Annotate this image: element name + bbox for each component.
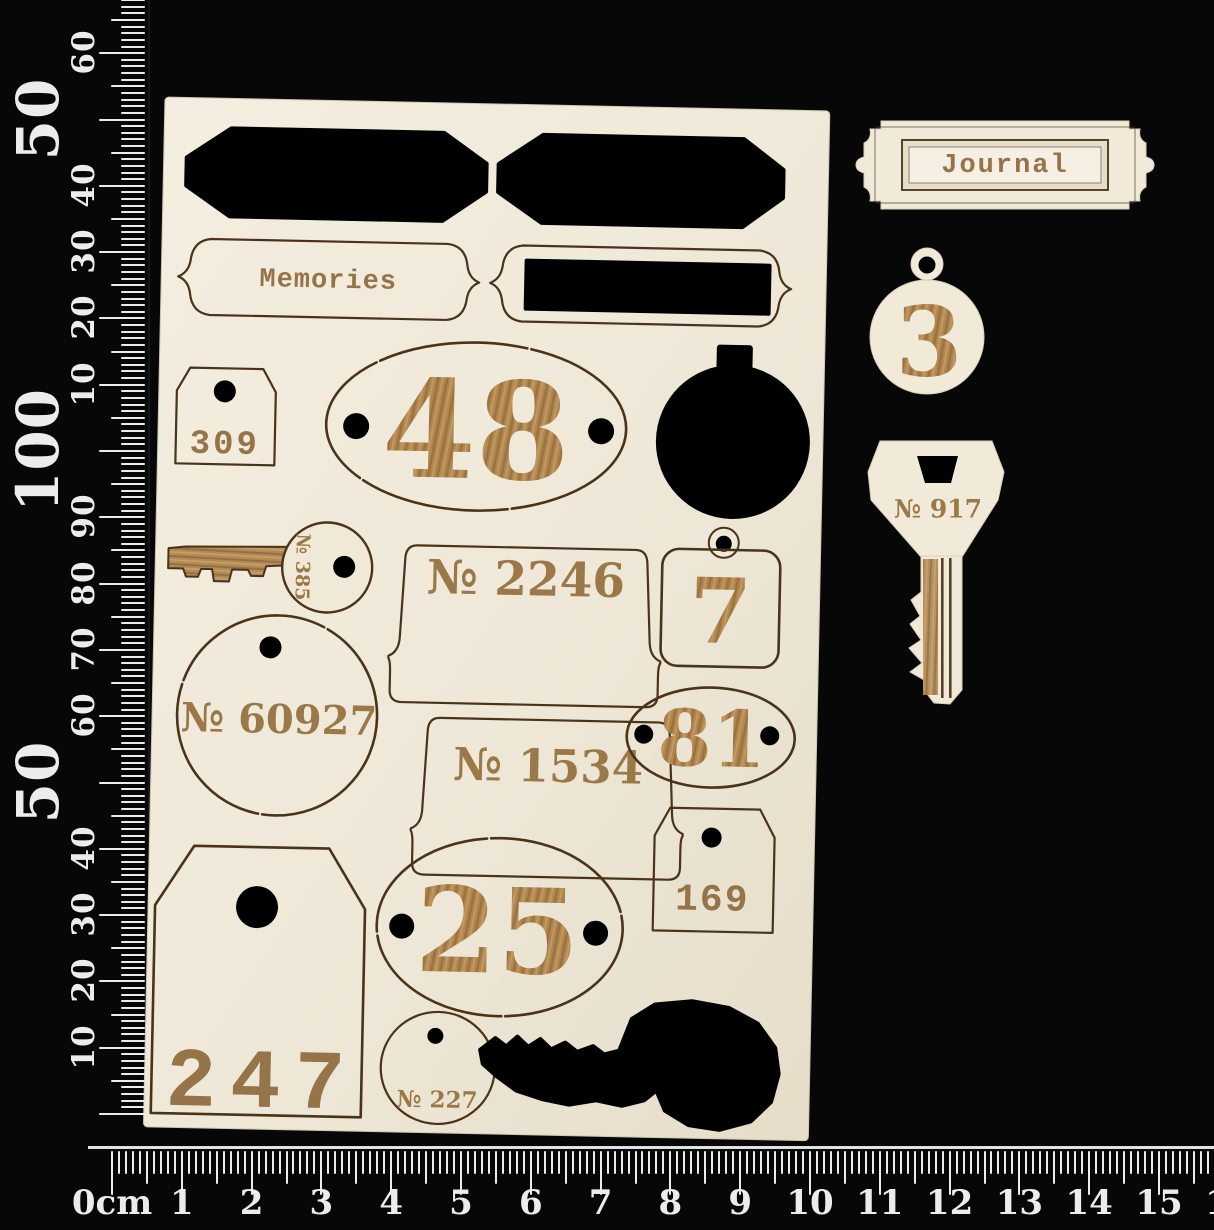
number-tag-3: 3 xyxy=(870,248,984,399)
key-917-number: № 917 xyxy=(894,495,982,524)
tag-60927-number: № 60927 xyxy=(180,694,378,745)
tag-3-hole xyxy=(919,257,936,274)
key-385-number: № 385 xyxy=(290,533,313,600)
key-917-groove-1 xyxy=(941,558,944,698)
memories-text: Memories xyxy=(259,265,397,298)
chipboard-sheet: Memories 309 48 № 385 xyxy=(143,97,829,1144)
key-917-grain xyxy=(923,559,938,695)
craft-photo: Memories 309 48 № 385 xyxy=(0,0,1214,1230)
tag-7-number: 7 xyxy=(688,558,753,665)
horizontal-ruler-line xyxy=(88,1146,1214,1149)
key-917-groove-2 xyxy=(949,558,952,698)
label-2246-number: № 2246 xyxy=(426,550,625,609)
plate-48-number: 48 xyxy=(381,349,572,512)
journal-text: Journal xyxy=(941,151,1068,181)
plate-25-number: 25 xyxy=(414,860,581,1002)
ticket-cutout-left xyxy=(186,127,488,221)
tag-227-number: № 227 xyxy=(396,1086,478,1115)
tag-309-number: 309 xyxy=(189,426,260,465)
tag-3-number: 3 xyxy=(896,286,963,399)
journal-plate: Journal xyxy=(856,121,1154,209)
ticket-cutout-right xyxy=(497,134,784,228)
key-917: № 917 xyxy=(868,441,1004,704)
plaque-window-cutout xyxy=(524,259,772,316)
plate-81-number: 81 xyxy=(656,693,766,786)
label-1534-number: № 1534 xyxy=(453,738,644,795)
tag-169-number: 169 xyxy=(675,878,750,923)
tag-247-number: 247 xyxy=(165,1036,360,1135)
